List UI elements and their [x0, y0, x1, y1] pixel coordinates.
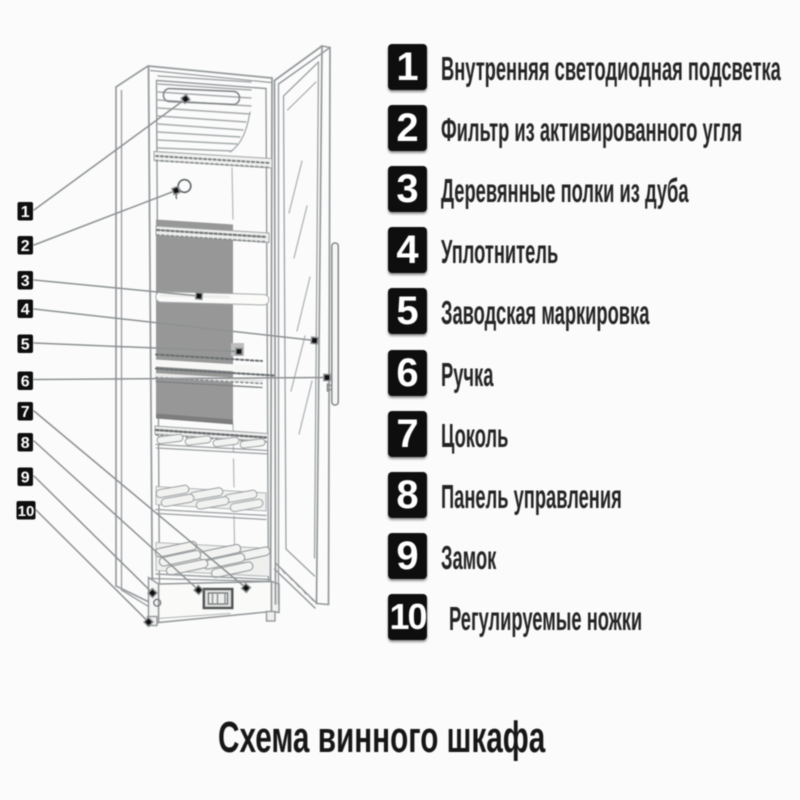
svg-text:4: 4: [21, 302, 30, 319]
svg-text:1: 1: [21, 204, 30, 221]
svg-text:2: 2: [21, 238, 30, 255]
svg-text:5: 5: [21, 337, 30, 354]
svg-text:10: 10: [18, 503, 35, 520]
svg-text:9: 9: [21, 470, 30, 487]
svg-text:7: 7: [21, 404, 30, 421]
svg-text:6: 6: [21, 374, 30, 391]
svg-text:8: 8: [21, 435, 30, 452]
svg-text:3: 3: [21, 273, 30, 290]
